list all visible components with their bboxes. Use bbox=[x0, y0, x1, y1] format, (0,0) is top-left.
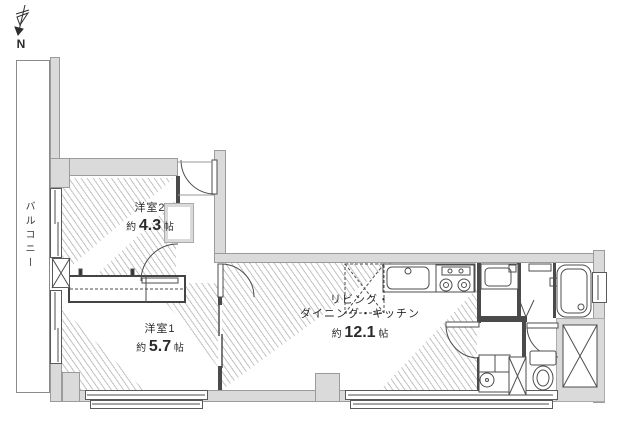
room-size: 約 12.1 帖 bbox=[280, 323, 440, 344]
gas-stove-icon bbox=[436, 265, 474, 292]
room-name: 洋室1 bbox=[108, 322, 212, 336]
size-value: 5.7 bbox=[149, 338, 171, 355]
room-size: 約 5.7 帖 bbox=[108, 337, 212, 358]
size-prefix: 約 bbox=[332, 329, 342, 340]
closet-details bbox=[70, 269, 184, 303]
room-name-line2: ダイニング・キッチン bbox=[280, 307, 440, 321]
bath-control bbox=[550, 278, 557, 286]
size-prefix: 約 bbox=[136, 343, 146, 354]
door-washroom bbox=[446, 322, 479, 358]
north-arrow-icon bbox=[15, 5, 29, 35]
room-label-yoshitsu1: 洋室1 約 5.7 帖 bbox=[108, 322, 212, 358]
plan-symbols bbox=[0, 0, 629, 428]
size-unit: 帖 bbox=[378, 329, 388, 340]
balcony-label: バルコニー bbox=[22, 188, 35, 283]
floor-plan: N バルコニー 洋室2 約 4.3 帖 洋室1 約 5.7 帖 リビング・ ダイ… bbox=[0, 0, 629, 428]
size-value: 12.1 bbox=[344, 324, 375, 341]
sliding-door-yoshitsu1 bbox=[219, 302, 222, 368]
bath-mirror bbox=[529, 264, 551, 271]
door-hall-ldk bbox=[218, 264, 254, 297]
room-name: 洋室2 bbox=[98, 201, 202, 215]
size-unit: 帖 bbox=[174, 343, 184, 354]
room-size: 約 4.3 帖 bbox=[98, 216, 202, 237]
washbasin-icon bbox=[479, 355, 510, 392]
toilet-icon bbox=[530, 351, 556, 390]
room-name-line1: リビング・ bbox=[280, 293, 440, 307]
storage-shelf bbox=[509, 357, 526, 395]
door-yoshitsu2 bbox=[141, 244, 178, 283]
kitchen-counter bbox=[383, 264, 475, 292]
bathroom-folding-door bbox=[519, 299, 534, 317]
entry-door bbox=[178, 160, 217, 195]
bathtub-icon bbox=[557, 265, 591, 317]
washing-machine-pan-icon bbox=[481, 264, 518, 289]
size-unit: 帖 bbox=[164, 222, 174, 233]
size-value: 4.3 bbox=[139, 217, 161, 234]
meter-box bbox=[563, 325, 597, 387]
size-prefix: 約 bbox=[126, 222, 136, 233]
compass-label: N bbox=[12, 37, 30, 53]
pipe-space-cross bbox=[52, 258, 70, 288]
room-label-yoshitsu2: 洋室2 約 4.3 帖 bbox=[98, 201, 202, 237]
room-label-ldk: リビング・ ダイニング・キッチン 約 12.1 帖 bbox=[280, 293, 440, 343]
